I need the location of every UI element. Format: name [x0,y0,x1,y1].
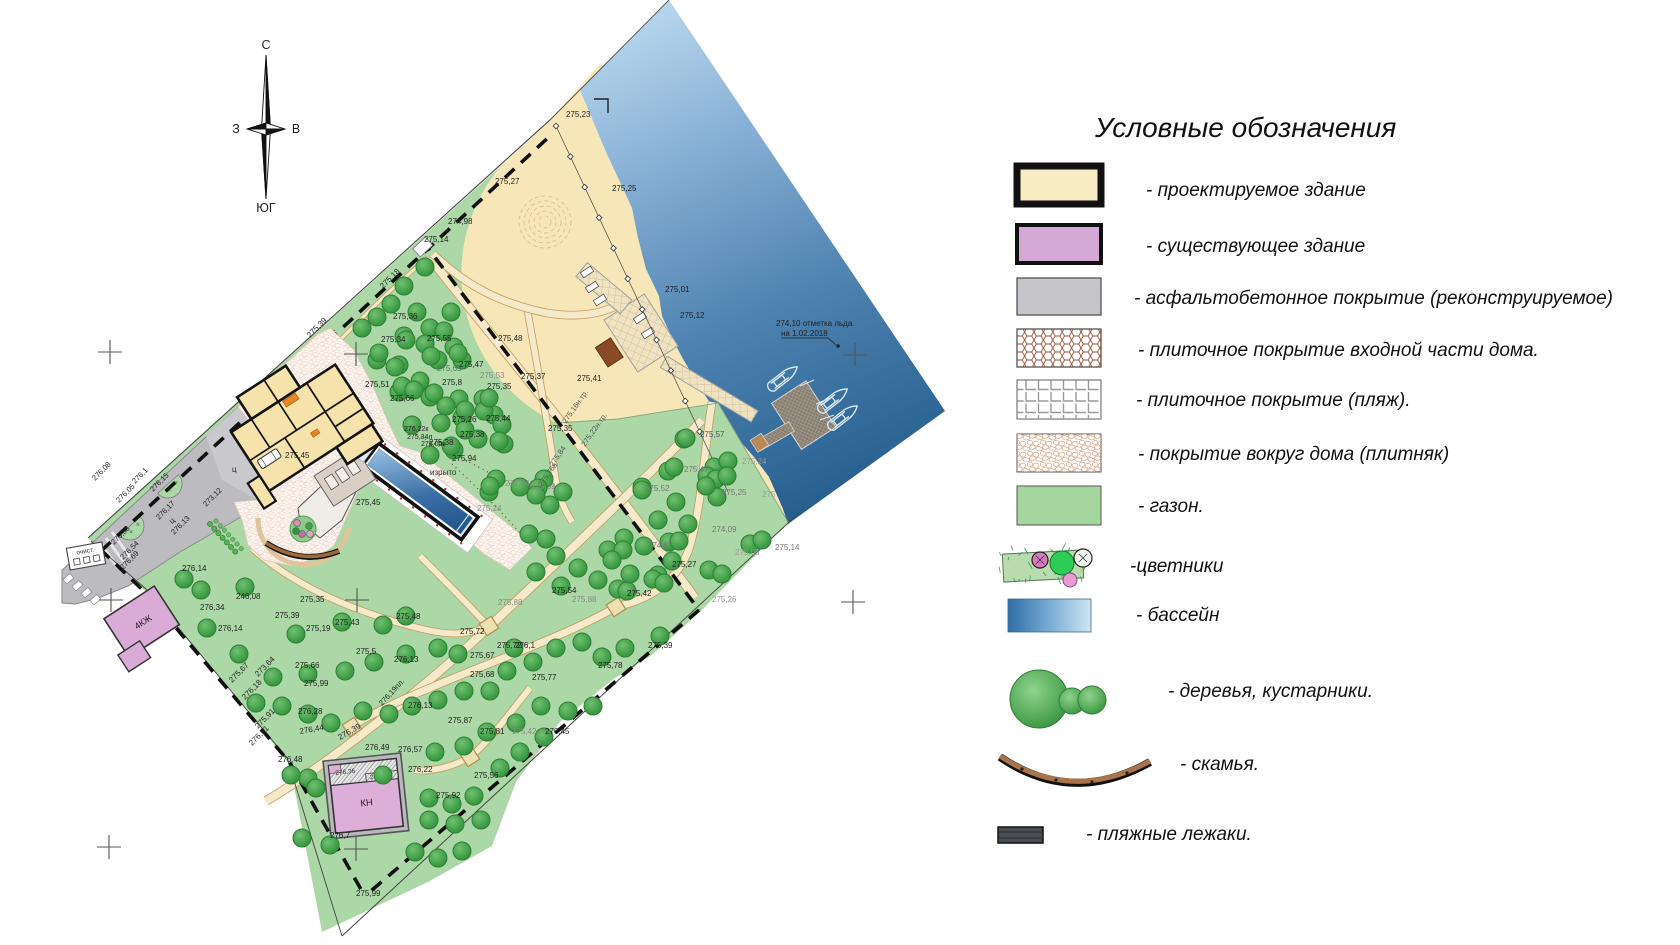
svg-text:276,7: 276,7 [330,831,351,840]
svg-text:274,10 отметка льда: 274,10 отметка льда [776,319,853,328]
svg-text:изрыто: изрыто [430,468,457,477]
svg-text:276,22к: 276,22к [404,426,429,433]
svg-text:275,35: 275,35 [300,595,325,604]
svg-text:275,88: 275,88 [498,598,523,607]
svg-text:С: С [261,38,270,52]
svg-text:275,05: 275,05 [735,548,760,557]
svg-text:274,09: 274,09 [712,525,737,534]
svg-text:ц: ц [232,465,237,474]
svg-text:275,25: 275,25 [612,184,637,193]
svg-text:КН: КН [360,797,374,809]
svg-text:- пляжные лежаки.: - пляжные лежаки. [1086,824,1252,845]
svg-text:275,44: 275,44 [486,414,511,423]
svg-text:276,22: 276,22 [408,765,433,774]
svg-text:275,19: 275,19 [306,624,331,633]
svg-text:276,13: 276,13 [394,655,419,664]
svg-text:275,23: 275,23 [566,110,591,119]
svg-text:275,88: 275,88 [572,595,597,604]
svg-text:275,94: 275,94 [452,454,477,463]
svg-text:275,26: 275,26 [452,415,477,424]
svg-text:275,34: 275,34 [505,479,530,488]
svg-text:275,37: 275,37 [521,372,546,381]
svg-text:275,12: 275,12 [680,311,705,320]
svg-text:275,38: 275,38 [460,430,485,439]
svg-text:275,35: 275,35 [548,424,573,433]
svg-text:275,48: 275,48 [396,612,421,621]
svg-text:275,01: 275,01 [665,285,690,294]
svg-text:275,48: 275,48 [498,334,523,343]
svg-text:275,52: 275,52 [645,484,670,493]
svg-text:276,13: 276,13 [408,701,433,710]
svg-text:275,45: 275,45 [356,498,381,507]
svg-text:275,27: 275,27 [672,560,697,569]
svg-text:З: З [232,122,240,136]
svg-text:275,39: 275,39 [275,611,300,620]
svg-text:246,08: 246,08 [236,592,261,601]
svg-text:276,14: 276,14 [182,564,207,573]
svg-text:275,45: 275,45 [285,451,310,460]
svg-text:275,47: 275,47 [684,465,709,474]
svg-text:275,78: 275,78 [598,661,623,670]
svg-text:275,41: 275,41 [577,374,602,383]
svg-text:275,26: 275,26 [712,595,737,604]
svg-text:275,43: 275,43 [335,618,360,627]
svg-text:275,77: 275,77 [532,673,557,682]
svg-text:274,62: 274,62 [648,541,673,550]
svg-text:274,98: 274,98 [448,217,473,226]
svg-text:275,99: 275,99 [304,679,329,688]
svg-text:275,53: 275,53 [480,371,505,380]
svg-text:ЮГ: ЮГ [256,201,276,215]
svg-text:276,28: 276,28 [298,707,323,716]
svg-text:Условные обозначения: Условные обозначения [1094,112,1396,143]
svg-text:275,35: 275,35 [487,382,512,391]
svg-text:275,5: 275,5 [356,647,377,656]
svg-text:275,57: 275,57 [700,430,725,439]
svg-text:275,56: 275,56 [474,771,499,780]
svg-text:276,14: 276,14 [218,624,243,633]
svg-text:- плиточное покрытие (пляж).: - плиточное покрытие (пляж). [1136,390,1410,411]
svg-text:275,24: 275,24 [477,504,502,513]
svg-text:- проектируемое здание: - проектируемое здание [1146,180,1366,201]
svg-text:- скамья.: - скамья. [1180,754,1259,775]
svg-text:- газон.: - газон. [1138,496,1204,517]
svg-text:275,65: 275,65 [437,364,462,373]
svg-text:276,1: 276,1 [515,641,536,650]
svg-text:275,14: 275,14 [424,235,449,244]
svg-text:275,39: 275,39 [648,641,673,650]
svg-text:275,27: 275,27 [495,177,520,186]
svg-text:276,05к: 276,05к [421,441,446,448]
svg-text:276,45: 276,45 [545,727,570,736]
svg-text:- плиточное покрытие входной ч: - плиточное покрытие входной части дома. [1138,340,1539,361]
svg-text:275,72: 275,72 [460,627,485,636]
svg-text:- существующее здание: - существующее здание [1146,236,1365,257]
svg-text:275,81: 275,81 [480,727,505,736]
svg-text:- бассейн: - бассейн [1136,605,1220,626]
svg-text:275,54: 275,54 [552,586,577,595]
svg-text:275,8: 275,8 [442,378,463,387]
svg-text:- асфальтобетонное покрытие (р: - асфальтобетонное покрытие (реконструир… [1134,288,1613,309]
svg-text:275,25: 275,25 [722,488,747,497]
svg-text:275,14: 275,14 [775,543,800,552]
svg-text:275,42: 275,42 [627,589,652,598]
svg-text:275,42: 275,42 [512,727,537,736]
svg-text:276,48: 276,48 [278,755,303,764]
svg-text:275,66: 275,66 [295,661,320,670]
svg-text:275,34: 275,34 [381,335,406,344]
svg-text:275,92: 275,92 [436,791,461,800]
svg-text:275,68: 275,68 [470,670,495,679]
svg-text:275,87: 275,87 [448,716,473,725]
svg-text:276,34: 276,34 [200,603,225,612]
svg-text:276,57: 276,57 [398,745,423,754]
svg-text:275,55: 275,55 [427,334,452,343]
svg-text:275,66: 275,66 [390,394,415,403]
svg-text:275,99: 275,99 [356,889,381,898]
svg-text:275,24: 275,24 [742,457,767,466]
svg-text:275,47: 275,47 [459,360,484,369]
svg-text:275,51: 275,51 [365,380,390,389]
svg-text:В: В [292,122,300,136]
svg-text:-цветники: -цветники [1130,556,1224,577]
svg-text:276,49: 276,49 [365,743,390,752]
svg-text:275: 275 [762,490,776,499]
svg-text:275,34л: 275,34л [407,434,433,441]
svg-text:- покрытие вокруг дома (плитн: - покрытие вокруг дома (плитняк) [1138,444,1449,465]
svg-text:275,36: 275,36 [393,312,418,321]
svg-text:на 1.02.2018: на 1.02.2018 [781,329,828,338]
svg-text:- деревья, кустарники.: - деревья, кустарники. [1168,681,1373,702]
svg-text:275,67: 275,67 [470,651,495,660]
